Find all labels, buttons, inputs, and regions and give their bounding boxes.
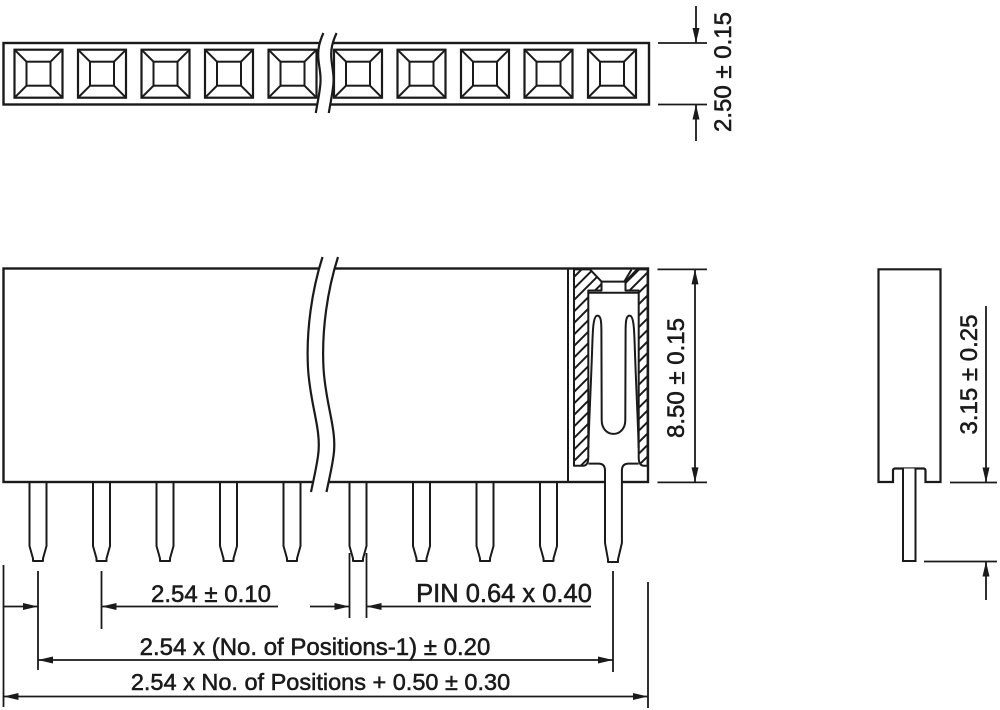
svg-text:2.54 x No. of Positions + 0.50: 2.54 x No. of Positions + 0.50 ± 0.30 [131, 669, 510, 695]
svg-text:3.15 ± 0.25: 3.15 ± 0.25 [956, 315, 983, 435]
svg-text:2.54 ± 0.10: 2.54 ± 0.10 [151, 581, 271, 608]
svg-text:8.50 ± 0.15: 8.50 ± 0.15 [663, 318, 690, 438]
svg-text:PIN 0.64 x 0.40: PIN 0.64 x 0.40 [416, 580, 592, 608]
svg-text:2.54 x (No. of Positions-1) ±: 2.54 x (No. of Positions-1) ± 0.20 [140, 634, 491, 661]
svg-text:2.50 ± 0.15: 2.50 ± 0.15 [710, 12, 737, 132]
